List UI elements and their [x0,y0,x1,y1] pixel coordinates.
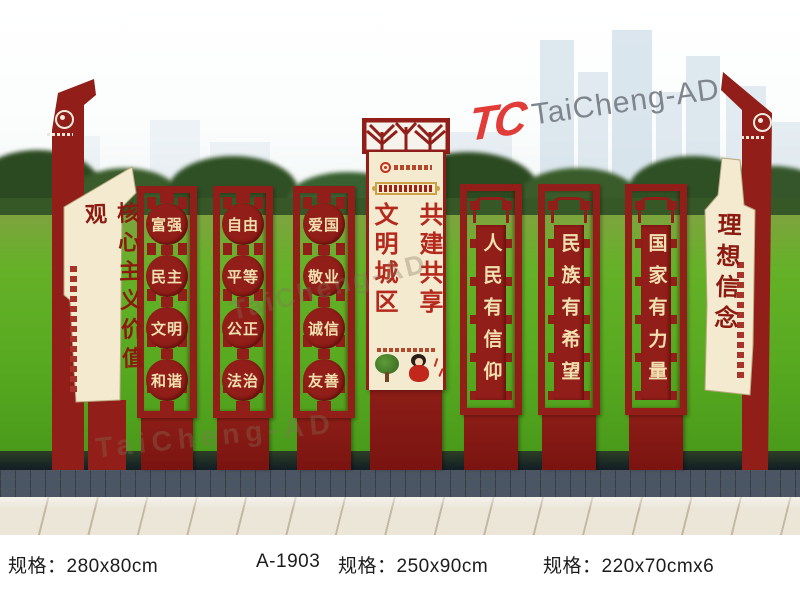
value-pair-text: 自由 [227,214,259,235]
banner-text-marks [379,185,433,192]
value-pair-text: 法治 [227,370,259,391]
brand-emblem-icon [380,162,391,173]
value-pair-text: 爱国 [308,214,340,235]
girl-figure [407,354,431,384]
value-pair-text: 和谐 [151,370,183,391]
spec-label-4: 规格：220x70cmx6 [543,551,714,578]
spec-label-1: 规格：280x80cm [8,551,158,578]
value-pair-text: 民主 [151,266,183,287]
slogan-text: 人民有信仰 [478,233,505,393]
slogan-panel-1-base [464,413,518,470]
slogan-panel-2: 民族有希望 [538,184,600,415]
pavement [0,497,800,535]
center-lattice-crown [362,118,450,154]
slogan-panel-2-base [542,413,596,470]
brand-emblem-icon [55,110,74,129]
emblem-caption-marks [741,136,765,139]
value-pair-text: 富强 [151,214,183,235]
signage-scene: 核心主义价值观 富强 民主 文明 和谐 自由 平等 公正 法治 [0,0,800,600]
emblem-caption-marks [47,133,73,136]
decor-mark [434,358,439,367]
brand-emblem-icon [753,113,772,132]
center-illustration [369,358,443,388]
logo-caption-marks [394,165,432,170]
decor-mark [438,368,443,377]
center-logo-row [369,160,443,174]
scroll-banner [375,182,437,195]
slogan-panel-3-base [629,413,683,470]
slogan-panel-3: 国家有力量 [625,184,687,415]
right-totem-title: 理想信念 [704,211,744,362]
center-small-text-marks [377,348,435,352]
spec-label-3: 规格：250x90cm [338,551,488,578]
slogan-panel-1: 人民有信仰 [460,184,522,415]
left-totem-title: 核心主义价值观 [78,201,149,399]
value-pair-text: 诚信 [308,318,340,339]
left-totem-small-text-marks [70,266,77,392]
slogan-text: 民族有希望 [556,233,583,393]
value-pair-text: 友善 [308,370,340,391]
center-panel-base [370,388,442,470]
tree-figure [375,354,399,380]
value-pair-text: 文明 [151,318,183,339]
value-pair-text: 平等 [227,266,259,287]
slogan-text: 国家有力量 [643,233,670,393]
brand-monogram: TC [467,89,526,152]
spec-label-2: A-1903 [256,551,320,573]
